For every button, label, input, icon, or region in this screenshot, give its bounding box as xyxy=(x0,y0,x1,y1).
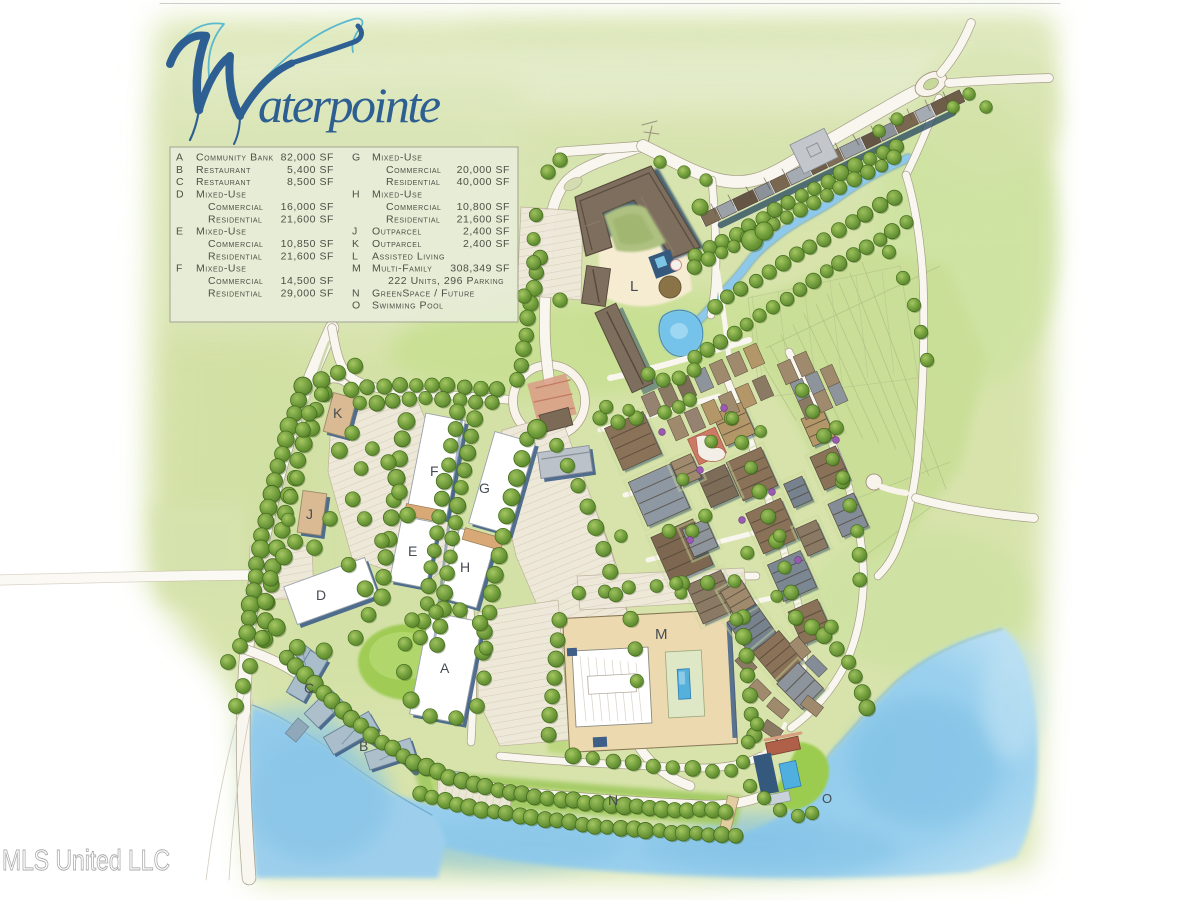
svg-text:L: L xyxy=(630,278,638,295)
svg-text:Commercial: Commercial xyxy=(208,238,263,250)
svg-text:20,000 SF: 20,000 SF xyxy=(457,164,510,176)
svg-text:G: G xyxy=(352,152,361,164)
svg-text:A: A xyxy=(440,660,450,676)
svg-text:N: N xyxy=(608,792,618,808)
svg-text:Commercial: Commercial xyxy=(386,201,441,213)
svg-text:C: C xyxy=(304,680,314,696)
svg-text:M: M xyxy=(352,263,361,275)
svg-text:aterpointe: aterpointe xyxy=(258,77,441,133)
svg-text:Community Bank: Community Bank xyxy=(196,152,274,164)
svg-text:B: B xyxy=(176,164,184,176)
svg-text:Mixed-Use: Mixed-Use xyxy=(196,263,246,275)
svg-text:E: E xyxy=(408,543,417,559)
svg-text:D: D xyxy=(176,189,184,201)
svg-text:2,400 SF: 2,400 SF xyxy=(463,226,510,238)
svg-text:16,000 SF: 16,000 SF xyxy=(281,201,334,213)
svg-text:21,600 SF: 21,600 SF xyxy=(281,213,334,225)
svg-text:Multi-Family: Multi-Family xyxy=(372,263,432,275)
svg-text:D: D xyxy=(316,587,326,603)
svg-text:H: H xyxy=(352,189,360,201)
svg-text:Mixed-Use: Mixed-Use xyxy=(196,226,246,238)
svg-text:Restaurant: Restaurant xyxy=(196,164,251,176)
svg-text:Outparcel: Outparcel xyxy=(372,226,422,238)
svg-text:O: O xyxy=(352,300,361,312)
svg-text:C: C xyxy=(176,176,184,188)
svg-text:F: F xyxy=(430,463,439,479)
svg-text:Commercial: Commercial xyxy=(208,201,263,213)
svg-text:L: L xyxy=(352,250,358,262)
svg-text:Swimming Pool: Swimming Pool xyxy=(372,300,444,312)
svg-text:Commercial: Commercial xyxy=(208,275,263,287)
svg-text:B: B xyxy=(359,738,368,754)
svg-text:8,500 SF: 8,500 SF xyxy=(287,176,334,188)
svg-text:Restaurant: Restaurant xyxy=(196,176,251,188)
svg-text:Residential: Residential xyxy=(386,176,440,188)
svg-text:14,500 SF: 14,500 SF xyxy=(281,275,334,287)
svg-text:40,000 SF: 40,000 SF xyxy=(457,176,510,188)
svg-text:G: G xyxy=(479,480,490,496)
svg-text:10,850 SF: 10,850 SF xyxy=(281,238,334,250)
svg-text:J: J xyxy=(306,506,313,522)
svg-text:Outparcel: Outparcel xyxy=(372,238,422,250)
svg-text:Mixed-Use: Mixed-Use xyxy=(196,189,246,201)
svg-text:Residential: Residential xyxy=(386,213,440,225)
svg-text:308,349 SF: 308,349 SF xyxy=(450,263,510,275)
svg-text:21,600 SF: 21,600 SF xyxy=(281,250,334,262)
svg-text:N: N xyxy=(352,287,360,299)
svg-text:Residential: Residential xyxy=(208,287,262,299)
svg-text:Mixed-Use: Mixed-Use xyxy=(372,189,422,201)
svg-text:Residential: Residential xyxy=(208,213,262,225)
svg-text:2,400 SF: 2,400 SF xyxy=(463,238,510,250)
svg-text:29,000 SF: 29,000 SF xyxy=(281,287,334,299)
svg-text:222 Units, 296 Parking: 222 Units, 296 Parking xyxy=(388,275,504,287)
svg-text:GreenSpace / Future: GreenSpace / Future xyxy=(372,287,475,299)
svg-text:J: J xyxy=(352,226,358,238)
svg-text:Residential: Residential xyxy=(208,250,262,262)
svg-text:A: A xyxy=(176,152,184,164)
svg-text:M: M xyxy=(655,626,668,643)
svg-text:H: H xyxy=(460,559,470,575)
svg-text:K: K xyxy=(352,238,360,250)
svg-text:MLS United LLC: MLS United LLC xyxy=(2,845,170,877)
svg-text:Assisted Living: Assisted Living xyxy=(372,250,445,262)
svg-text:K: K xyxy=(333,405,343,421)
svg-text:Commercial: Commercial xyxy=(386,164,441,176)
svg-text:5,400 SF: 5,400 SF xyxy=(287,164,334,176)
svg-text:21,600 SF: 21,600 SF xyxy=(457,213,510,225)
svg-text:E: E xyxy=(176,226,184,238)
svg-text:F: F xyxy=(176,263,183,275)
svg-text:82,000 SF: 82,000 SF xyxy=(281,152,334,164)
svg-text:Mixed-Use: Mixed-Use xyxy=(372,152,422,164)
svg-text:10,800 SF: 10,800 SF xyxy=(457,201,510,213)
svg-text:O: O xyxy=(822,791,832,806)
